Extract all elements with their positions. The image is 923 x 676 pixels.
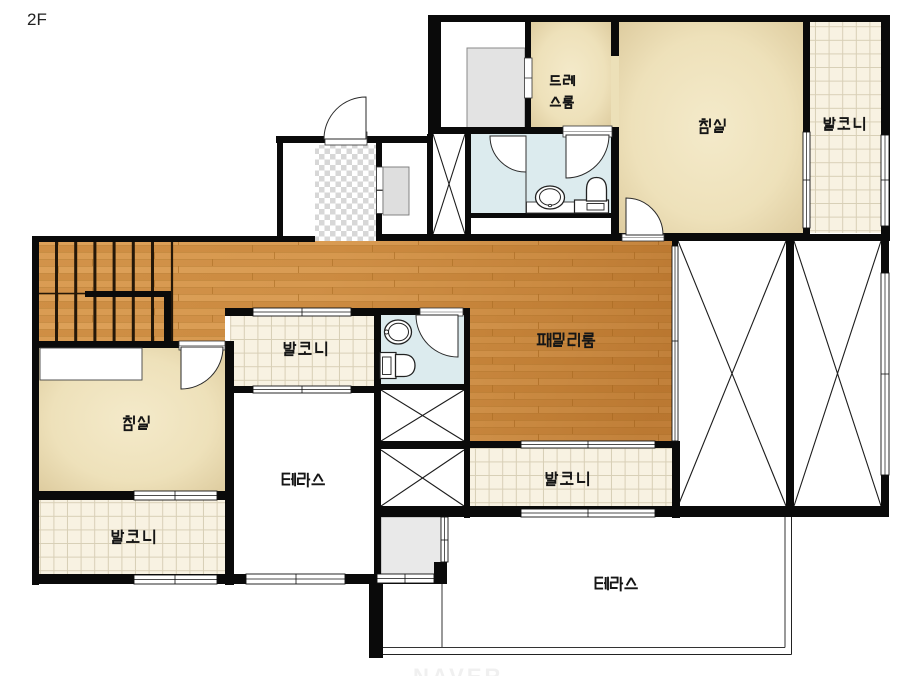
svg-text:2F: 2F [27, 10, 47, 29]
svg-text:NAVER: NAVER [413, 664, 503, 676]
